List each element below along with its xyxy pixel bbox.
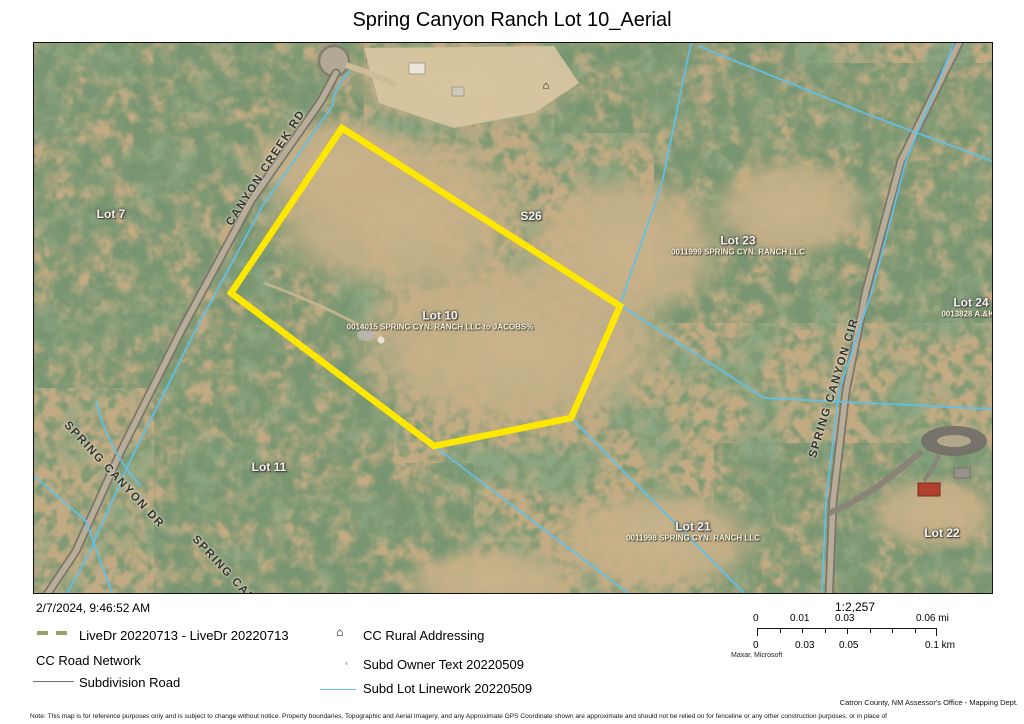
- legend-item-cc-rural-addressing: CC Rural Addressing: [363, 628, 484, 643]
- page-title: Spring Canyon Ranch Lot 10_Aerial: [0, 9, 1024, 32]
- scale-mi-3: 0.06 mi: [916, 613, 949, 624]
- house-icon: ⌂: [543, 81, 550, 91]
- house-icon: ⌂: [336, 627, 343, 638]
- scale-mi-0: 0: [753, 613, 759, 624]
- scale-km-3: 0.1 km: [925, 640, 955, 651]
- scale-km-2: 0.05: [839, 640, 858, 651]
- disclaimer-note: Note: This map is for reference purposes…: [30, 713, 1024, 720]
- lot-label-21: Lot 21 0011998 SPRING CYN. RANCH LLC: [626, 520, 760, 543]
- owner-text-23: 0011999 SPRING CYN. RANCH LLC: [671, 248, 805, 257]
- scale-mi-1: 0.01: [790, 613, 809, 624]
- map-export-page: Spring Canyon Ranch Lot 10_Aerial: [0, 0, 1024, 724]
- legend-item-subdivision-road: Subdivision Road: [79, 675, 180, 690]
- legend-item-livedr: LiveDr 20220713 - LiveDr 20220713: [79, 628, 289, 643]
- lot-label-11: Lot 11: [252, 460, 287, 474]
- livedr-dash-icon: [56, 631, 67, 635]
- imagery-credit: Maxar, Microsoft: [731, 652, 782, 659]
- scale-km-1: 0.03: [795, 640, 814, 651]
- legend-group-cc-road-network: CC Road Network: [36, 653, 141, 668]
- lot-label-22: Lot 22: [924, 526, 959, 540]
- lot-label-10: Lot 10 0014015 SPRING CYN. RANCH LLC to …: [347, 309, 534, 332]
- map-viewport[interactable]: Lot 7 S26 Lot 23 0011999 SPRING CYN. RAN…: [33, 42, 993, 594]
- owner-text-24: 0013828 A.&K. I: [941, 310, 993, 319]
- livedr-dash-icon: [37, 631, 48, 635]
- owner-text-10: 0014015 SPRING CYN. RANCH LLC to JACOBS%: [347, 323, 534, 332]
- scale-km-0: 0: [753, 640, 759, 651]
- section-label-s26: S26: [520, 209, 541, 223]
- scale-bar: [757, 628, 937, 636]
- legend-item-subd-lot-linework: Subd Lot Linework 20220509: [363, 681, 532, 696]
- scale-ratio: 1:2,257: [795, 600, 915, 614]
- lot-label-7: Lot 7: [97, 207, 126, 221]
- lot-label-23: Lot 23 0011999 SPRING CYN. RANCH LLC: [671, 234, 805, 257]
- attribution: Catron County, NM Assessor's Office - Ma…: [840, 698, 1018, 707]
- scale-mi-2: 0.03: [835, 613, 854, 624]
- owner-text-21: 0011998 SPRING CYN. RANCH LLC: [626, 534, 760, 543]
- owner-text-dot-icon: [345, 662, 348, 665]
- lot-linework-line-icon: [320, 689, 356, 690]
- export-timestamp: 2/7/2024, 9:46:52 AM: [36, 601, 150, 615]
- legend-item-subd-owner-text: Subd Owner Text 20220509: [363, 657, 524, 672]
- lot-label-24: Lot 24 0013828 A.&K. I: [941, 296, 993, 319]
- subdivision-road-line-icon: [33, 681, 74, 682]
